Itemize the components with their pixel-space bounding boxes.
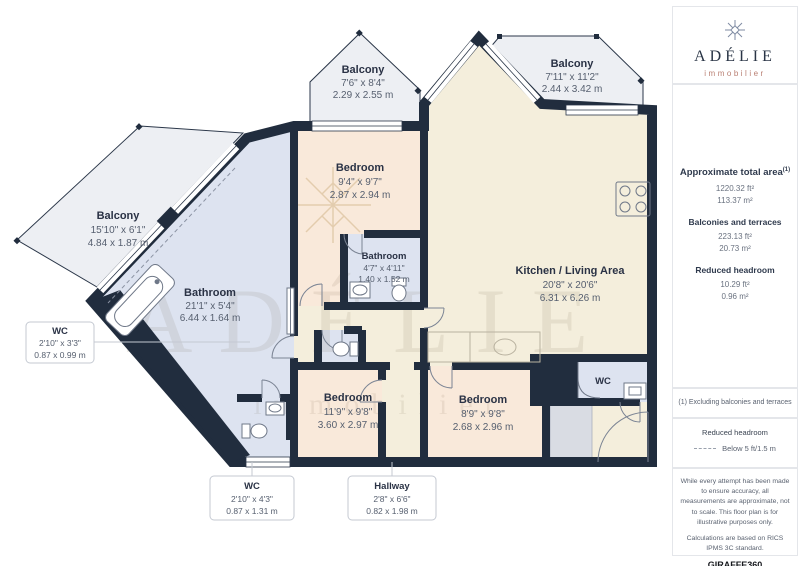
radiator-icon xyxy=(287,288,294,334)
room-label-wc-right: WC xyxy=(595,376,611,387)
room-label-balcony-left: Balcony 15'10" x 6'1" 4.84 x 1.87 m xyxy=(88,210,149,249)
brand-panel: ADÉLIE immobilier xyxy=(672,6,798,84)
room-dim-imperial: 11'9" x 9'8" xyxy=(324,407,373,418)
reduced-headroom-m: 0.96 m² xyxy=(673,292,797,301)
footnote-marker: (1) xyxy=(783,167,790,173)
room-dim-imperial: 7'11" x 11'2" xyxy=(545,72,599,83)
legend-item-text: Below 5 ft/1.5 m xyxy=(722,444,776,453)
callout-dim-imperial: 2'8" x 6'6" xyxy=(373,494,410,504)
sink-icon xyxy=(266,402,284,415)
room-title: Bedroom xyxy=(459,394,508,406)
room-title: Bathroom xyxy=(184,287,236,299)
balconies-ft: 223.13 ft² xyxy=(673,232,797,241)
room-title: Kitchen / Living Area xyxy=(515,265,625,277)
callout-dim-metric: 0.87 x 0.99 m xyxy=(34,350,86,360)
room-title: Balcony xyxy=(551,58,595,70)
reduced-headroom-ft: 10.29 ft² xyxy=(673,280,797,289)
room-dim-metric: 6.31 x 6.26 m xyxy=(540,293,601,304)
disclaimer-text-1: While every attempt has been made to ens… xyxy=(680,477,790,528)
balconies-m: 20.73 m² xyxy=(673,244,797,253)
floorplan-drawing: ADÉLIE immobilier xyxy=(0,0,660,566)
sink-icon xyxy=(350,282,370,298)
balconies-label: Balconies and terraces xyxy=(673,217,797,227)
room-title: Bedroom xyxy=(324,392,373,404)
brand-tagline: immobilier xyxy=(673,69,797,78)
total-area-title: Approximate total area(1) xyxy=(673,167,797,178)
room-dim-imperial: 21'1" x 5'4" xyxy=(185,301,235,312)
callout-title: WC xyxy=(244,481,260,492)
room-dim-metric: 1.40 x 1.52 m xyxy=(358,274,410,284)
toilet-icon xyxy=(624,383,646,399)
room-dim-metric: 2.87 x 2.94 m xyxy=(330,190,391,201)
room-dim-metric: 2.29 x 2.55 m xyxy=(333,90,394,101)
giraffe360-credit: GIRAFFE360 xyxy=(680,560,790,566)
callout-wc-bottom: WC 2'10" x 4'3" 0.87 x 1.31 m xyxy=(210,462,294,520)
reduced-headroom-label: Reduced headroom xyxy=(673,265,797,275)
room-label-balcony-top-right: Balcony 7'11" x 11'2" 2.44 x 3.42 m xyxy=(542,58,603,95)
room-title: Bedroom xyxy=(336,162,385,174)
floorplan-page: ADÉLIE immobilier xyxy=(0,0,800,566)
room-title: Bathroom xyxy=(362,251,407,262)
room-dim-imperial: 7'6" x 8'4" xyxy=(341,78,385,89)
info-sidebar: ADÉLIE immobilier Approximate total area… xyxy=(660,0,800,566)
footnote-panel: (1) Excluding balconies and terraces xyxy=(672,388,798,418)
callout-dim-imperial: 2'10" x 4'3" xyxy=(231,494,273,504)
legend-panel: Reduced headroom Below 5 ft/1.5 m xyxy=(672,418,798,468)
total-area-ft: 1220.32 ft² xyxy=(673,184,797,193)
callout-title: Hallway xyxy=(374,481,410,492)
callout-hallway: Hallway 2'8" x 6'6" 0.82 x 1.98 m xyxy=(348,462,436,520)
room-label-bathroom-large: Bathroom 21'1" x 5'4" 6.44 x 1.64 m xyxy=(180,287,241,324)
window xyxy=(566,105,638,115)
room-label-bedroom-top: Bedroom 9'4" x 9'7" 2.87 x 2.94 m xyxy=(330,162,391,201)
room-dim-metric: 2.44 x 3.42 m xyxy=(542,84,603,95)
room-dim-imperial: 4'7" x 4'11" xyxy=(363,263,404,273)
room-label-bedroom-bottom-left: Bedroom 11'9" x 9'8" 3.60 x 2.97 m xyxy=(318,392,379,431)
disclaimer-text-2: Calculations are based on RICS IPMS 3C s… xyxy=(680,534,790,554)
room-label-balcony-top-left: Balcony 7'6" x 8'4" 2.29 x 2.55 m xyxy=(333,64,394,101)
room-title: Balcony xyxy=(97,210,141,222)
room-dim-metric: 2.68 x 2.96 m xyxy=(453,422,514,433)
room-dim-imperial: 8'9" x 9'8" xyxy=(461,409,505,420)
room-dim-imperial: 20'8" x 20'6" xyxy=(543,280,598,291)
callout-dim-metric: 0.82 x 1.98 m xyxy=(366,506,418,516)
room-label-bathroom-small: Bathroom 4'7" x 4'11" 1.40 x 1.52 m xyxy=(358,251,410,284)
callout-dim-imperial: 2'10" x 3'3" xyxy=(39,338,81,348)
room-dim-metric: 6.44 x 1.64 m xyxy=(180,313,241,324)
room-dim-metric: 3.60 x 2.97 m xyxy=(318,420,379,431)
callout-title: WC xyxy=(52,326,68,337)
room-dim-imperial: 15'10" x 6'1" xyxy=(91,225,146,236)
legend-title: Reduced headroom xyxy=(673,428,797,437)
dashed-line-sample xyxy=(694,448,716,449)
room-title: Balcony xyxy=(342,64,386,76)
total-area-m: 113.37 m² xyxy=(673,196,797,205)
room-label-bedroom-bottom-right: Bedroom 8'9" x 9'8" 2.68 x 2.96 m xyxy=(453,394,514,433)
footnote-text: (1) Excluding balconies and terraces xyxy=(673,389,797,417)
disclaimer-panel: While every attempt has been made to ens… xyxy=(672,468,798,556)
window xyxy=(246,457,290,467)
toilet-icon xyxy=(242,424,267,438)
toilet-icon xyxy=(333,342,358,356)
snowflake-icon xyxy=(724,19,746,41)
area-summary-panel: Approximate total area(1) 1220.32 ft² 11… xyxy=(672,84,798,388)
window xyxy=(312,121,402,131)
room-dim-imperial: 9'4" x 9'7" xyxy=(338,177,382,188)
callout-dim-metric: 0.87 x 1.31 m xyxy=(226,506,278,516)
brand-name: ADÉLIE xyxy=(673,48,797,66)
room-dim-metric: 4.84 x 1.87 m xyxy=(88,238,149,249)
